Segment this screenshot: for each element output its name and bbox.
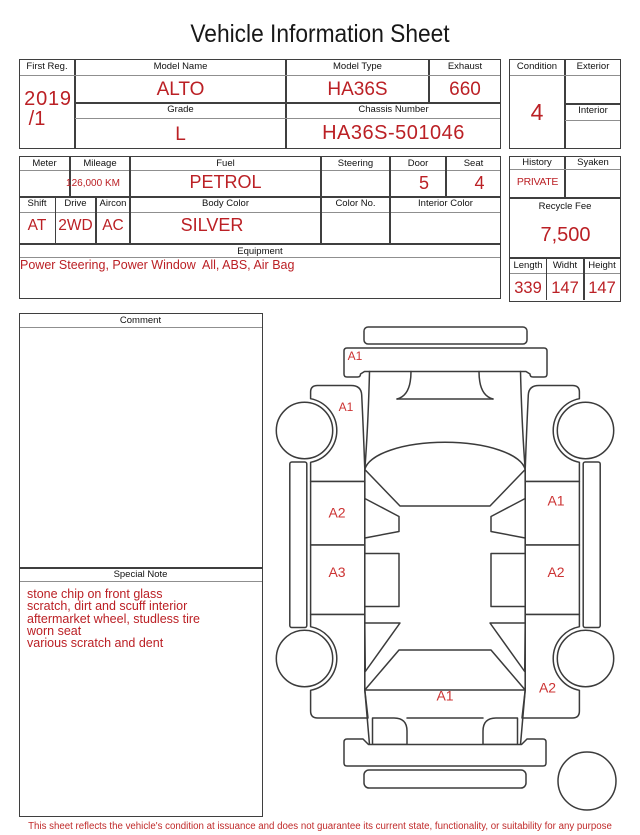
svg-text:A1: A1: [348, 349, 363, 363]
svg-text:A2: A2: [547, 564, 564, 580]
svg-text:A3: A3: [328, 564, 345, 580]
svg-text:A1: A1: [547, 493, 564, 509]
svg-text:A2: A2: [328, 505, 345, 521]
svg-text:A1: A1: [436, 688, 453, 704]
svg-text:A1: A1: [339, 400, 354, 414]
svg-text:A2: A2: [539, 680, 556, 696]
